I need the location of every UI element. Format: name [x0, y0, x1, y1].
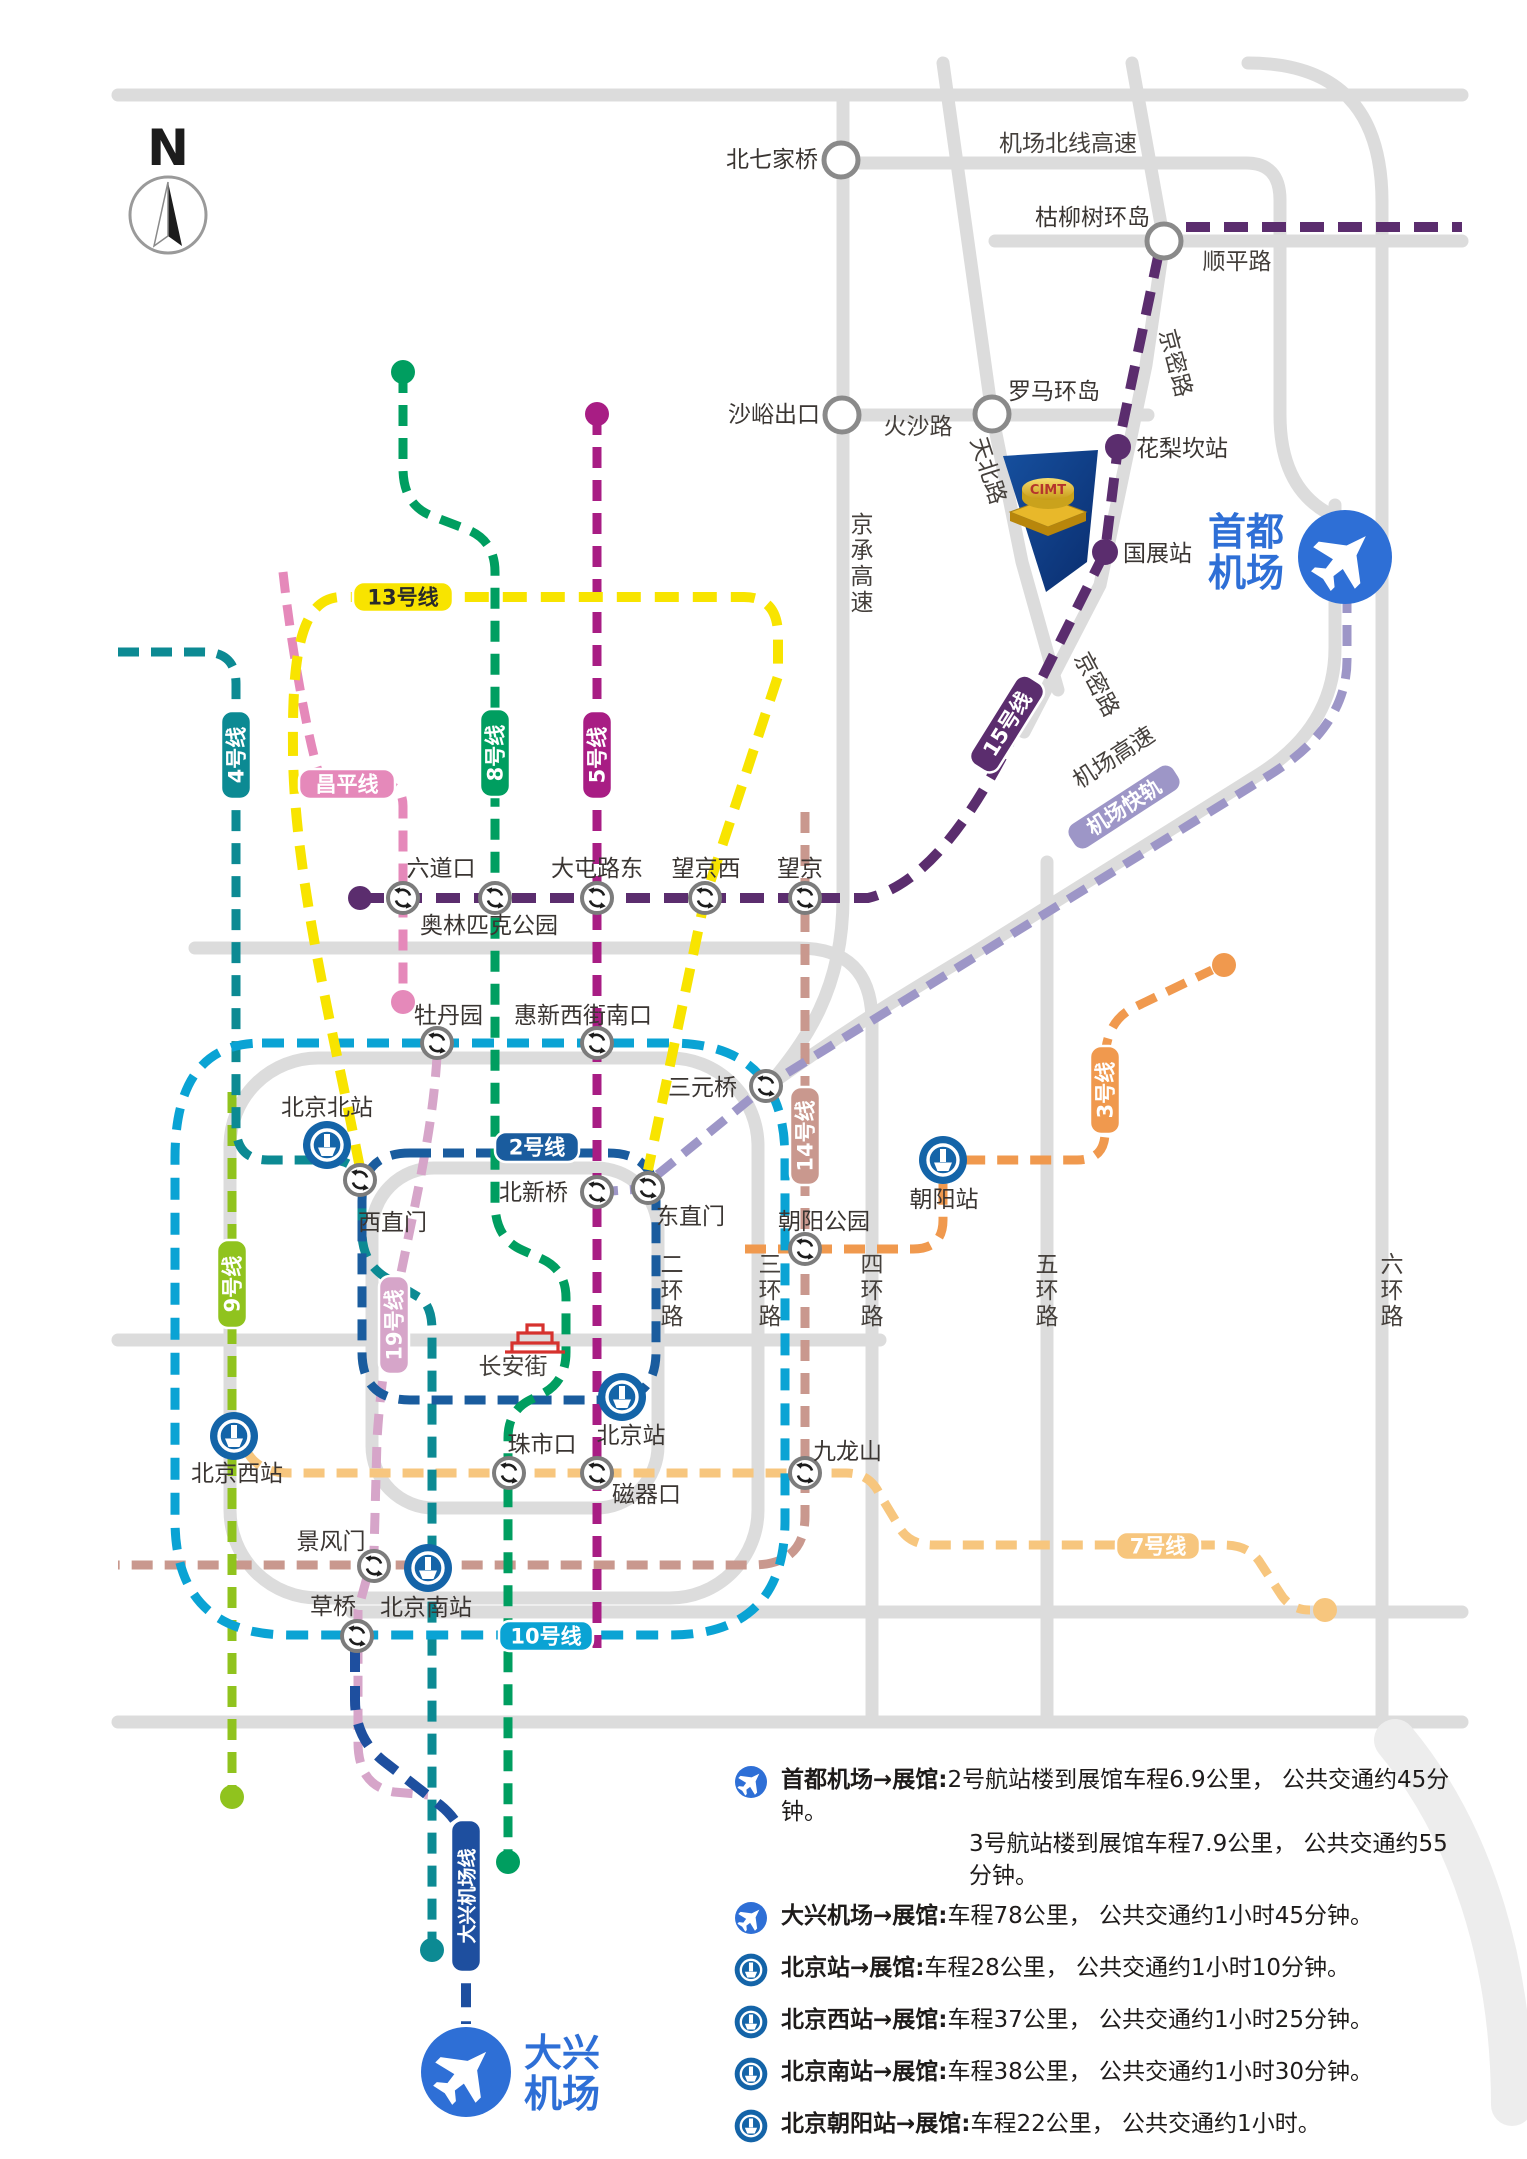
capital-airport-label: 机场 — [1208, 551, 1284, 595]
station-label: 珠市口 — [508, 1432, 577, 1458]
legend-text: 北京朝阳站→展馆:车程22公里， 公共交通约1小时。 — [781, 2108, 1321, 2140]
station-label: 草桥 — [310, 1594, 356, 1620]
legend-text: 北京站→展馆:车程28公里， 公共交通约1小时10分钟。 — [781, 1952, 1350, 1984]
north-label: N — [147, 119, 189, 177]
station-label: 三元桥 — [668, 1075, 737, 1101]
interchange-station-marker — [790, 1234, 820, 1264]
road-label: 机场北线高速 — [999, 131, 1137, 157]
line-pill-label: 9号线 — [221, 1256, 245, 1313]
road-label: 顺平路 — [1203, 249, 1272, 275]
line-terminal-dot — [220, 1785, 244, 1809]
daxing-airport-label: 机场 — [524, 2072, 600, 2116]
road-label: 京密路 — [1069, 648, 1124, 721]
interchange-station-marker — [494, 1458, 524, 1488]
line-pill-label: 5号线 — [586, 727, 610, 784]
legend-row: 首都机场→展馆:2号航站楼到展馆车程6.9公里， 公共交通约45分钟。3号航站楼… — [734, 1764, 1450, 1892]
legend-row: 大兴机场→展馆:车程78公里， 公共交通约1小时45分钟。 — [734, 1900, 1450, 1944]
railway-station-marker — [404, 1544, 452, 1592]
station-label: 北京北站 — [281, 1095, 373, 1121]
rail-icon — [734, 2108, 768, 2152]
line-terminal-dot — [1105, 434, 1131, 460]
rail-icon — [734, 2056, 768, 2100]
interchange-station-marker — [751, 1071, 781, 1101]
line-name-pill: 19号线 — [379, 1276, 409, 1374]
station-label: 北新桥 — [499, 1180, 568, 1206]
line-name-pill: 3号线 — [1090, 1046, 1120, 1134]
road-jingcheng-expwy — [768, 95, 843, 1086]
station-label: 奥林匹克公园 — [420, 913, 558, 939]
line-pill-label: 大兴机场线 — [456, 1848, 479, 1943]
line-name-pill: 昌平线 — [299, 769, 395, 799]
line-terminal-dot — [391, 990, 415, 1014]
line-name-pill: 9号线 — [217, 1240, 247, 1328]
line-name-pill: 7号线 — [1116, 1532, 1200, 1560]
line-name-pill: 4号线 — [221, 711, 251, 799]
line-name-pill: 大兴机场线 — [451, 1820, 481, 1972]
station-label: 磁器口 — [612, 1482, 681, 1508]
interchange-station-marker — [345, 1165, 375, 1195]
station-label: 牡丹园 — [414, 1003, 483, 1029]
legend-row: 北京西站→展馆:车程37公里， 公共交通约1小时25分钟。 — [734, 2004, 1450, 2048]
railway-station-marker — [598, 1373, 646, 1421]
rail-icon — [734, 1952, 768, 1996]
line-pill-label: 13号线 — [367, 586, 438, 610]
interchange-station-marker — [388, 883, 418, 913]
daxing-airport-label: 大兴 — [524, 2031, 600, 2075]
rail-legend-icon — [734, 2109, 768, 2143]
line-name-pill: 10号线 — [499, 1621, 593, 1651]
road-label: 四环路 — [861, 1252, 884, 1330]
line-pill-label: 2号线 — [509, 1136, 566, 1160]
road-junction-marker — [1147, 224, 1181, 258]
capital-airport-label: 首都 — [1208, 510, 1284, 554]
road-label: 六环路 — [1381, 1252, 1404, 1330]
station-label: 西直门 — [358, 1210, 427, 1236]
line-name-pill: 2号线 — [495, 1132, 579, 1162]
capital-airport: 首都 机场 — [1208, 510, 1392, 604]
line-name-pill: 15号线 — [966, 671, 1048, 776]
interchange-station-marker — [582, 1028, 612, 1058]
station-label: 大屯路东 — [551, 856, 643, 882]
plane-icon — [734, 1900, 768, 1944]
line-pill-label: 19号线 — [383, 1289, 407, 1360]
interchange-station-marker — [582, 883, 612, 913]
station-label: 景风门 — [297, 1529, 366, 1555]
daxing-airport: 大兴 机场 — [421, 2027, 600, 2117]
road-junction-marker — [825, 398, 859, 432]
station-label: 北京南站 — [380, 1595, 472, 1621]
line-terminal-dot — [391, 360, 415, 384]
railway-station-marker — [303, 1121, 351, 1169]
line-name-pill: 14号线 — [790, 1087, 820, 1185]
road-label: 三环路 — [759, 1252, 782, 1330]
line-terminal-dot — [420, 1938, 444, 1962]
station-label: 九龙山 — [813, 1439, 882, 1465]
station-label: 朝阳公园 — [778, 1209, 870, 1235]
venue-marker: CIMT — [1003, 450, 1098, 592]
rail-icon — [734, 2004, 768, 2048]
station-label: 东直门 — [656, 1204, 725, 1230]
station-label: 北京站 — [597, 1423, 666, 1449]
line-terminal-dot — [585, 402, 609, 426]
rail-legend-icon — [734, 2057, 768, 2091]
legend-row: 北京朝阳站→展馆:车程22公里， 公共交通约1小时。 — [734, 2108, 1450, 2152]
interchange-station-marker — [582, 1458, 612, 1488]
interchange-station-marker — [633, 1173, 663, 1203]
station-label: 北京西站 — [191, 1461, 283, 1487]
legend-text: 北京南站→展馆:车程38公里， 公共交通约1小时30分钟。 — [781, 2056, 1373, 2088]
station-label: 沙峪出口 — [728, 402, 820, 428]
station-label: 望京 — [777, 856, 823, 882]
line-pill-label: 3号线 — [1094, 1062, 1118, 1119]
venue-access-map-page: 机场北线高速顺平路京密路火沙路天北路京承高速京密路机场高速二环路三环路四环路五环… — [0, 0, 1527, 2159]
station-label: 花梨坎站 — [1136, 436, 1228, 462]
road-label: 五环路 — [1036, 1252, 1059, 1330]
station-label: 国展站 — [1123, 541, 1192, 567]
travel-info-legend: 首都机场→展馆:2号航站楼到展馆车程6.9公里， 公共交通约45分钟。3号航站楼… — [734, 1764, 1450, 2159]
road-junction-marker — [824, 143, 858, 177]
road-ring6-east — [1248, 63, 1382, 1722]
line-name-pill: 5号线 — [582, 711, 612, 799]
line-terminal-dot — [1092, 539, 1118, 565]
line-pill-label: 昌平线 — [316, 773, 379, 797]
road-label: 京承高速 — [851, 512, 874, 616]
line-terminal-dot — [348, 886, 372, 910]
interchange-station-marker — [359, 1551, 389, 1581]
venue-logo-text: CIMT — [1030, 483, 1066, 498]
line-daxing-airport — [355, 1648, 466, 2024]
line-terminal-dot — [1212, 953, 1236, 977]
station-label: 望京西 — [672, 856, 741, 882]
plane-legend-icon — [734, 1901, 768, 1935]
line-terminal-dot — [496, 1850, 520, 1874]
line-name-pill: 8号线 — [480, 709, 510, 797]
rail-legend-icon — [734, 1953, 768, 1987]
line-pill-label: 7号线 — [1130, 1535, 1187, 1559]
interchange-station-marker — [690, 883, 720, 913]
interchange-station-marker — [582, 1177, 612, 1207]
north-compass: N — [130, 119, 206, 253]
line-7 — [246, 1450, 1310, 1610]
line-15 — [360, 252, 1159, 898]
line-terminal-dot — [1313, 1598, 1337, 1622]
plane-icon — [734, 1764, 768, 1808]
line-pill-label: 8号线 — [484, 725, 508, 782]
station-label: 枯柳树环岛 — [1035, 205, 1150, 231]
legend-text: 北京西站→展馆:车程37公里， 公共交通约1小时25分钟。 — [781, 2004, 1373, 2036]
legend-text: 大兴机场→展馆:车程78公里， 公共交通约1小时45分钟。 — [781, 1900, 1373, 1932]
station-label: 罗马环岛 — [1008, 379, 1100, 405]
road-label: 长安街 — [479, 1354, 548, 1380]
railway-station-marker — [210, 1412, 258, 1460]
interchange-station-marker — [422, 1028, 452, 1058]
station-label: 朝阳站 — [910, 1187, 979, 1213]
legend-row: 北京南站→展馆:车程38公里， 公共交通约1小时30分钟。 — [734, 2056, 1450, 2100]
legend-row: 北京站→展馆:车程28公里， 公共交通约1小时10分钟。 — [734, 1952, 1450, 1996]
interchange-station-marker — [790, 883, 820, 913]
line-pill-label: 10号线 — [510, 1625, 581, 1649]
interchange-station-marker — [342, 1621, 372, 1651]
station-label: 北七家桥 — [726, 147, 818, 173]
interchange-station-marker — [480, 883, 510, 913]
line-pill-label: 14号线 — [794, 1100, 818, 1171]
road-label: 京密路 — [1153, 326, 1196, 399]
plane-legend-icon — [734, 1765, 768, 1799]
station-label: 六道口 — [407, 856, 476, 882]
road-label: 火沙路 — [884, 414, 953, 440]
railway-station-marker — [919, 1136, 967, 1184]
rail-legend-icon — [734, 2005, 768, 2039]
line-pill-label: 4号线 — [225, 727, 249, 784]
legend-text: 首都机场→展馆:2号航站楼到展馆车程6.9公里， 公共交通约45分钟。3号航站楼… — [781, 1764, 1450, 1892]
line-name-pill: 13号线 — [353, 582, 453, 612]
road-junction-marker — [975, 397, 1009, 431]
station-label: 惠新西街南口 — [514, 1003, 652, 1029]
road-label: 二环路 — [661, 1252, 684, 1330]
